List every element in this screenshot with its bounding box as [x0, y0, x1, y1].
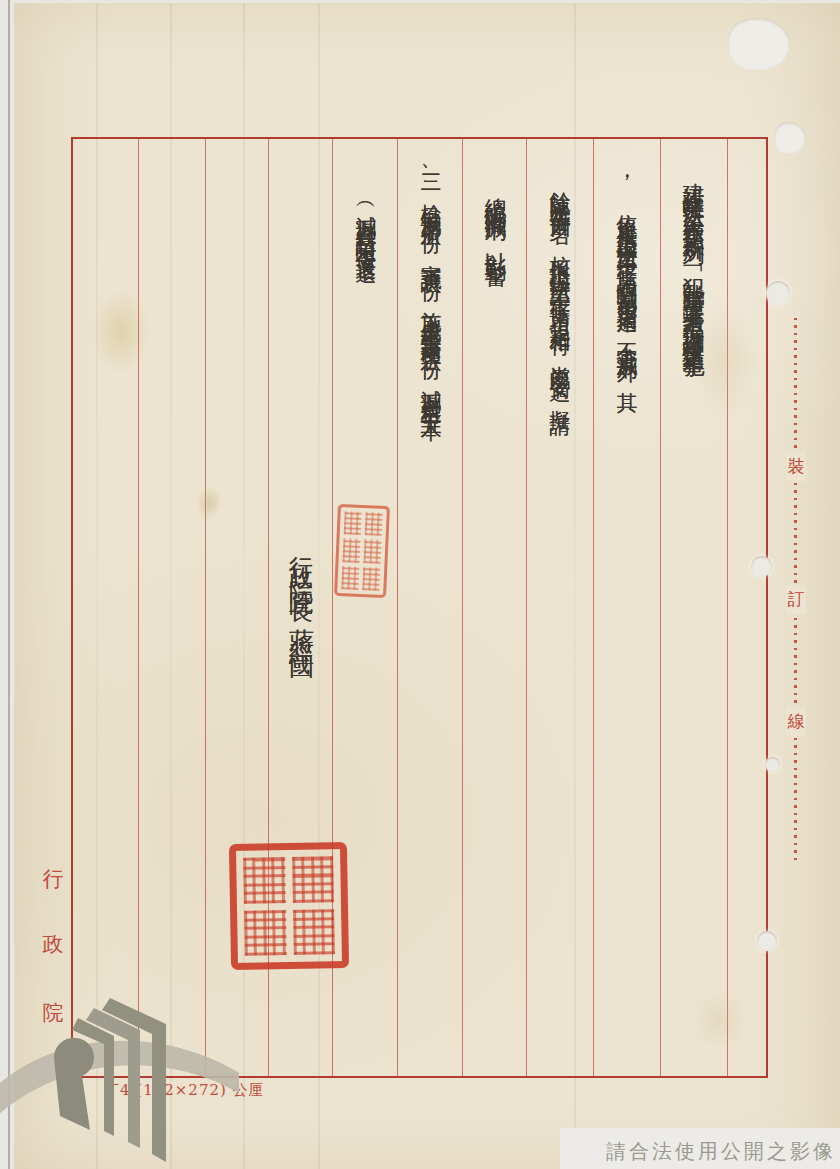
body-text: 三、檢呈減刑名册一份，審議表一份，施工成果報告表兩種各一份，減刑資料三十五本: [420, 137, 441, 1078]
small-official-seal: [334, 504, 390, 598]
body-text: （減刑資料請隨示復文退還）: [355, 137, 376, 1078]
text-column-5: 三、檢呈減刑名册一份，審議表一份，施工成果報告表兩種各一份，減刑資料三十五本: [397, 137, 464, 1078]
paper-stain: [92, 288, 150, 374]
text-column-1: 建設作業辦法」第六條第三款所列：「犯戰時軍律之罪者」不得調撥經建之軍事犯: [660, 137, 727, 1078]
paper-damage-blob: [728, 18, 790, 70]
body-text: ，依規定應無上項辦法第二十一條第一項有關減刑規定之適用，不宜予減刑外，其: [616, 137, 637, 1078]
grid-column-line: [205, 139, 206, 1076]
body-text: 餘陳光雄等卅四名，核與上項辦法第二十一條第一項規定相符，尚屬妥適，擬請: [549, 137, 570, 1078]
binding-char-zhuang: 裝: [786, 452, 806, 481]
text-column-2: ，依規定應無上項辦法第二十一條第一項有關減刑規定之適用，不宜予減刑外，其: [593, 137, 660, 1078]
grid-column-line: [727, 139, 728, 1076]
usage-watermark-text: 請合法使用公開之影像: [606, 1138, 836, 1165]
body-text: 建設作業辦法」第六條第三款所列：「犯戰時軍律之罪者」不得調撥經建之軍事犯: [683, 137, 705, 1078]
watermark-strip: 請合法使用公開之影像: [560, 1128, 840, 1169]
signer-title: 行政院院長: [287, 537, 315, 592]
text-column-3: 餘陳光雄等卅四名，核與上項辦法第二十一條第一項規定相符，尚屬妥適，擬請: [526, 137, 593, 1078]
text-column-4: 總統賜准減刑，以彰勤奮。: [462, 137, 529, 1078]
paper-stain: [196, 486, 222, 520]
binding-char-ding: 訂: [786, 585, 806, 614]
archives-emblem-logo: [0, 980, 239, 1169]
binding-char-xian: 線: [786, 707, 806, 736]
punch-hole: [751, 556, 772, 577]
signer-name: 蔣經國: [289, 608, 314, 650]
punch-hole: [757, 931, 777, 951]
premier-official-seal: [229, 842, 349, 970]
punch-hole: [766, 281, 790, 305]
punch-hole: [765, 757, 780, 772]
grid-column-line: [138, 139, 139, 1076]
body-text: 總統賜准減刑，以彰勤奮。: [485, 137, 507, 1078]
paper-damage-blob: [774, 122, 806, 154]
